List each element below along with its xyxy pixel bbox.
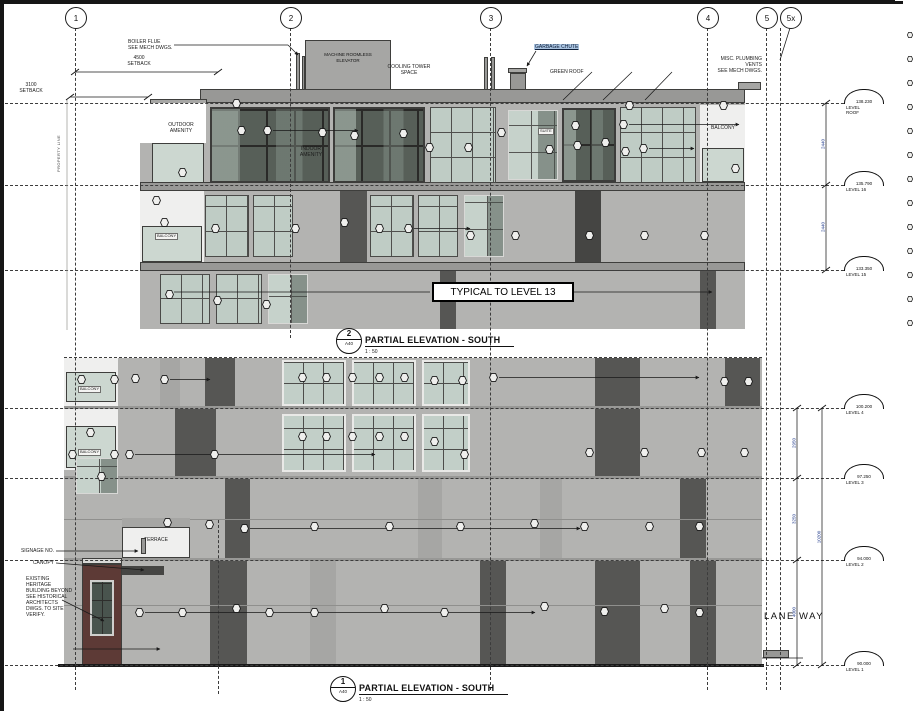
level-line xyxy=(5,185,884,186)
leader-line xyxy=(527,51,536,66)
keynote-hex xyxy=(719,101,728,110)
window-unit xyxy=(210,107,330,183)
keynote-hex xyxy=(540,602,549,611)
keynote-hex xyxy=(348,373,357,382)
leader-line xyxy=(66,94,74,100)
typical-note-text: TYPICAL TO LEVEL 13 xyxy=(450,287,555,298)
facade-block xyxy=(575,191,601,262)
window-unit xyxy=(464,195,504,257)
strip-keynote-hex xyxy=(907,32,913,38)
view-title-textblock: PARTIAL ELEVATION - SOUTH 1 : 50 xyxy=(365,328,514,355)
keynote-hex xyxy=(695,608,704,617)
keynote-hex xyxy=(580,522,589,531)
keynote-hex xyxy=(600,607,609,616)
facade-block xyxy=(296,53,300,92)
keynote-hex xyxy=(425,143,434,152)
leader-line xyxy=(780,28,790,60)
keynote-hex xyxy=(400,432,409,441)
keynote-hex xyxy=(573,141,582,150)
property-dash-line xyxy=(218,520,219,694)
grid-bubble-5x: 5x xyxy=(780,7,802,29)
keynote-hex xyxy=(625,101,634,110)
level-name: LEVEL 3 xyxy=(846,480,872,485)
keynote-hex xyxy=(466,231,475,240)
drawing-sheet: MACHINE ROOMLESS ELEVATOR TYPICAL TO LEV… xyxy=(0,0,913,711)
boiler-flue-note: BOILER FLUE SEE MECH DWGS. xyxy=(128,39,174,51)
strip-keynote-hex xyxy=(907,176,913,182)
keynote-hex xyxy=(213,296,222,305)
view-title-1: 1 A40 PARTIAL ELEVATION - SOUTH 1 : 50 xyxy=(330,676,508,703)
typical-note-box: TYPICAL TO LEVEL 13 xyxy=(432,282,574,302)
keynote-hex xyxy=(511,231,520,240)
green-roof-label: GREEN ROOF xyxy=(550,69,594,75)
view-title-text: PARTIAL ELEVATION - SOUTH xyxy=(359,683,508,695)
balcony-label-upper-right: BALCONY xyxy=(704,125,742,131)
setback-dim-3100: 3100 SETBACK xyxy=(16,82,46,94)
keynote-hex xyxy=(232,99,241,108)
sheet-border-bottom xyxy=(0,1,903,4)
grid-bubble-3: 3 xyxy=(480,7,502,29)
cut-dash-line xyxy=(64,357,762,358)
window-unit xyxy=(282,360,346,406)
grid-bubble-1: 1 xyxy=(65,7,87,29)
window-unit xyxy=(253,195,293,257)
level-name: LEVEL 15 xyxy=(846,272,872,277)
keynote-hex xyxy=(348,432,357,441)
terrace-label: TERRACE xyxy=(134,537,178,543)
keynote-hex xyxy=(265,608,274,617)
keynote-hex xyxy=(237,126,246,135)
dimension-label: 10200 xyxy=(817,531,822,544)
keynote-hex xyxy=(660,604,669,613)
facade-block xyxy=(700,271,716,329)
keynote-hex xyxy=(430,437,439,446)
heritage-note: EXISTING HERITAGE BUILDING BEYOND SEE HI… xyxy=(26,576,74,618)
keynote-hex xyxy=(310,522,319,531)
dimension-label: 2950 xyxy=(792,438,797,448)
level-marker: 94.000 xyxy=(844,546,884,561)
level-name: LEVEL 2 xyxy=(846,562,872,567)
setback-dim-4500: 4500 SETBACK xyxy=(124,55,154,67)
strip-keynote-hex xyxy=(907,200,913,206)
view-title-text: PARTIAL ELEVATION - SOUTH xyxy=(365,335,514,347)
keynote-hex xyxy=(322,432,331,441)
leader-line xyxy=(214,69,222,75)
facade-block xyxy=(738,82,761,90)
machine-room-label: MACHINE ROOMLESS ELEVATOR xyxy=(305,52,391,63)
facade-block xyxy=(305,40,391,92)
facade-block xyxy=(140,182,745,191)
level-marker: 138.230 xyxy=(844,89,884,104)
keynote-hex xyxy=(310,608,319,617)
window-unit xyxy=(160,274,210,324)
level-line xyxy=(5,408,884,409)
keynote-hex xyxy=(68,450,77,459)
keynote-hex xyxy=(489,373,498,382)
keynote-hex xyxy=(399,129,408,138)
facade-block xyxy=(142,226,202,262)
keynote-hex xyxy=(695,522,704,531)
signage-note: SIGNAGE NO. xyxy=(14,548,54,554)
facade-block xyxy=(200,89,745,103)
keynote-hex xyxy=(205,520,214,529)
keynote-hex xyxy=(375,432,384,441)
keynote-hex xyxy=(571,121,580,130)
window-unit xyxy=(430,107,496,183)
keynote-hex xyxy=(350,131,359,140)
keynote-hex xyxy=(135,608,144,617)
view-sheet: A40 xyxy=(345,340,353,348)
level-name: LEVEL 4 xyxy=(846,410,872,415)
keynote-hex xyxy=(340,218,349,227)
level-line xyxy=(5,103,884,104)
strip-keynote-hex xyxy=(907,80,913,86)
keynote-hex xyxy=(232,604,241,613)
facade-block xyxy=(680,477,706,559)
window-unit xyxy=(352,360,416,406)
keynote-hex xyxy=(110,375,119,384)
grid-line-3 xyxy=(490,28,491,690)
window-unit xyxy=(216,274,262,324)
sheet-border-right xyxy=(0,4,4,711)
facade-block xyxy=(540,477,562,559)
facade-block xyxy=(205,358,235,407)
view-scale: 1 : 50 xyxy=(365,349,514,355)
indoor-amenity-label: INDOOR AMENITY xyxy=(290,146,332,158)
level-marker: 100.200 xyxy=(844,394,884,409)
strip-keynote-hex xyxy=(907,296,913,302)
level-line xyxy=(5,560,884,561)
window-unit xyxy=(90,580,114,636)
keynote-hex xyxy=(585,448,594,457)
suite-label: SUITE xyxy=(538,128,554,135)
property-line-label: PROPERTY LINE xyxy=(57,135,62,172)
keynote-hex xyxy=(731,164,740,173)
keynote-hex xyxy=(291,224,300,233)
keynote-hex xyxy=(86,428,95,437)
keynote-hex xyxy=(211,224,220,233)
level-name: LEVEL ROOF xyxy=(846,105,872,115)
keynote-hex xyxy=(497,128,506,137)
facade-block xyxy=(480,559,506,665)
facade-block xyxy=(418,477,442,559)
keynote-hex xyxy=(640,231,649,240)
strip-keynote-hex xyxy=(907,248,913,254)
window-unit xyxy=(352,414,416,472)
keynote-hex xyxy=(545,145,554,154)
balcony-label-upper-left: BALCONY xyxy=(155,233,178,240)
keynote-hex xyxy=(298,373,307,382)
cooling-tower-label: COOLING TOWER SPACE xyxy=(380,64,438,76)
facade-block xyxy=(225,477,250,559)
keynote-hex xyxy=(720,377,729,386)
keynote-hex xyxy=(131,374,140,383)
keynote-hex xyxy=(530,519,539,528)
balcony-label-lower-1: BALCONY xyxy=(78,386,101,393)
keynote-hex xyxy=(298,432,307,441)
garbage-chute-note: GARBAGE CHUTE xyxy=(534,44,579,50)
outdoor-amenity-label: OUTDOOR AMENITY xyxy=(160,122,202,134)
keynote-hex xyxy=(700,231,709,240)
grid-bubble-4: 4 xyxy=(697,7,719,29)
keynote-hex xyxy=(645,522,654,531)
view-number: 2 xyxy=(337,329,361,340)
dimension-label: 2440 xyxy=(821,139,826,149)
keynote-hex xyxy=(740,448,749,457)
grid-line-1 xyxy=(75,28,76,690)
level-marker: 133.350 xyxy=(844,256,884,271)
view-title-bubble: 2 A40 xyxy=(336,328,362,354)
keynote-hex xyxy=(697,448,706,457)
grid-line-5x xyxy=(780,28,781,690)
keynote-hex xyxy=(640,448,649,457)
keynote-hex xyxy=(152,196,161,205)
keynote-hex xyxy=(163,518,172,527)
keynote-hex xyxy=(400,373,409,382)
grid-line-2 xyxy=(290,28,291,338)
keynote-hex xyxy=(110,450,119,459)
keynote-hex xyxy=(375,224,384,233)
keynote-hex xyxy=(97,472,106,481)
level-line xyxy=(5,478,884,479)
view-scale: 1 : 50 xyxy=(359,697,508,703)
facade-block xyxy=(210,559,247,665)
dimension-label: 3250 xyxy=(792,514,797,524)
keynote-hex xyxy=(385,522,394,531)
level-name: LEVEL 16 xyxy=(846,187,872,192)
keynote-hex xyxy=(464,143,473,152)
keynote-hex xyxy=(619,120,628,129)
misc-vents-note: MISC. PLUMBING VENTS SEE MECH DWGS. xyxy=(712,56,762,74)
level-marker: 90.000 xyxy=(844,651,884,666)
strip-keynote-hex xyxy=(907,104,913,110)
keynote-hex xyxy=(160,218,169,227)
view-title-2: 2 A40 PARTIAL ELEVATION - SOUTH 1 : 50 xyxy=(336,328,514,355)
level-marker: 97.250 xyxy=(844,464,884,479)
dimension-label: 4000 xyxy=(792,607,797,617)
keynote-hex xyxy=(178,608,187,617)
keynote-hex xyxy=(77,375,86,384)
window-unit xyxy=(620,107,696,183)
keynote-hex xyxy=(380,604,389,613)
keynote-hex xyxy=(460,450,469,459)
window-unit xyxy=(282,414,346,472)
view-number: 1 xyxy=(331,677,355,688)
strip-keynote-hex xyxy=(907,320,913,326)
window-unit xyxy=(333,107,425,183)
level-marker: 135.790 xyxy=(844,171,884,186)
keynote-hex xyxy=(430,376,439,385)
balcony-label-lower-2: BALCONY xyxy=(78,449,101,456)
dimension-label: 2440 xyxy=(821,222,826,232)
window-unit xyxy=(418,195,458,257)
strip-keynote-hex xyxy=(907,152,913,158)
strip-keynote-hex xyxy=(907,56,913,62)
grid-bubble-5: 5 xyxy=(756,7,778,29)
keynote-hex xyxy=(165,290,174,299)
keynote-hex xyxy=(744,377,753,386)
view-title-bubble: 1 A40 xyxy=(330,676,356,702)
keynote-hex xyxy=(639,144,648,153)
window-unit xyxy=(268,274,308,324)
level-line xyxy=(5,665,884,666)
keynote-hex xyxy=(178,168,187,177)
keynote-hex xyxy=(262,300,271,309)
keynote-hex xyxy=(322,373,331,382)
keynote-hex xyxy=(210,450,219,459)
keynote-hex xyxy=(456,522,465,531)
facade-block xyxy=(595,358,640,477)
keynote-hex xyxy=(375,373,384,382)
keynote-hex xyxy=(601,138,610,147)
strip-keynote-hex xyxy=(907,272,913,278)
keynote-hex xyxy=(458,376,467,385)
grid-line-5 xyxy=(766,28,767,690)
canopy-note: CANOPY xyxy=(14,560,54,566)
strip-keynote-hex xyxy=(907,224,913,230)
view-sheet: A40 xyxy=(339,688,347,696)
facade-block xyxy=(725,358,760,407)
keynote-hex xyxy=(404,224,413,233)
keynote-hex xyxy=(440,608,449,617)
view-title-textblock: PARTIAL ELEVATION - SOUTH 1 : 50 xyxy=(359,676,508,703)
facade-block xyxy=(484,57,488,93)
level-line xyxy=(5,270,884,271)
keynote-hex xyxy=(125,450,134,459)
keynote-hex xyxy=(585,231,594,240)
facade-block xyxy=(175,407,216,477)
facade-block xyxy=(152,143,204,183)
keynote-hex xyxy=(263,126,272,135)
keynote-hex xyxy=(318,128,327,137)
strip-keynote-hex xyxy=(907,128,913,134)
keynote-hex xyxy=(240,524,249,533)
grid-bubble-2: 2 xyxy=(280,7,302,29)
level-name: LEVEL 1 xyxy=(846,667,872,672)
keynote-hex xyxy=(621,147,630,156)
facade-block xyxy=(491,57,495,93)
facade-block xyxy=(122,518,190,527)
keynote-hex xyxy=(160,375,169,384)
facade-block xyxy=(64,605,762,606)
